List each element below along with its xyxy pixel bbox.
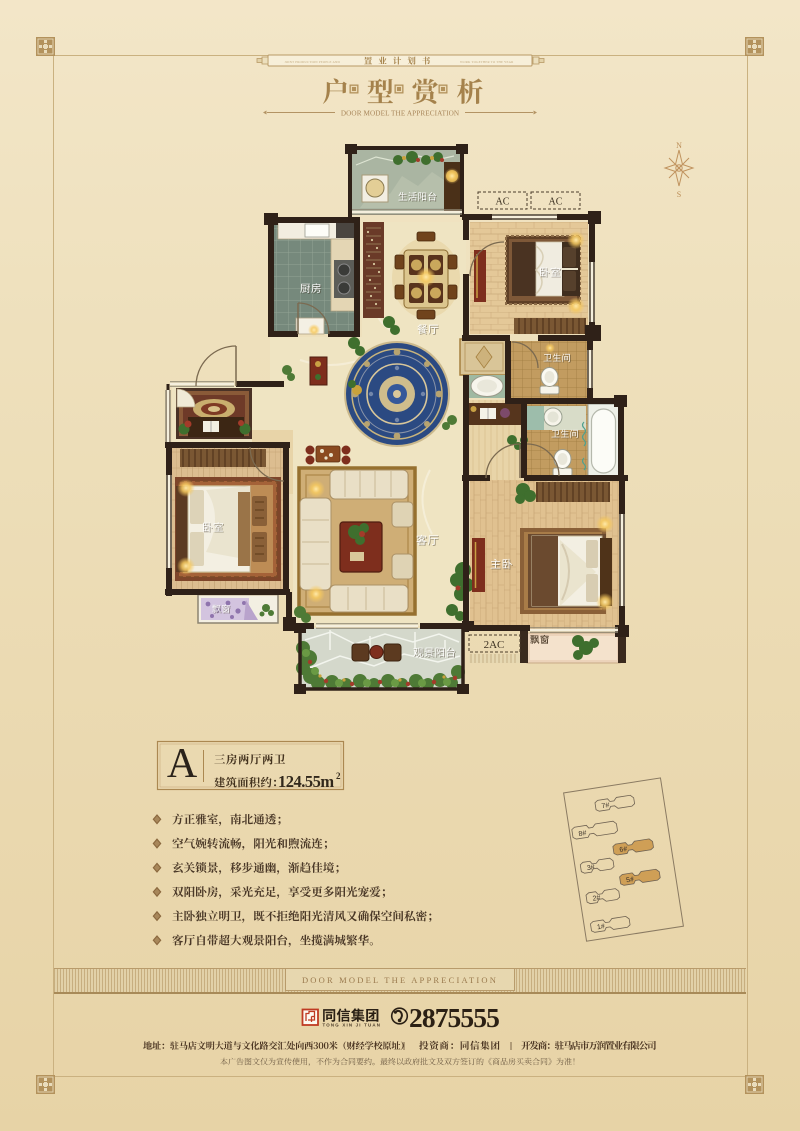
svg-text:DOOR MODEL THE APPRECIATION: DOOR MODEL THE APPRECIATION (341, 110, 460, 118)
svg-text:8#: 8# (578, 830, 587, 838)
svg-text:2#: 2# (592, 895, 601, 903)
svg-text:3#: 3# (586, 864, 595, 872)
svg-text:1#: 1# (597, 923, 606, 931)
svg-text:TONG XIN JI TUAN: TONG XIN JI TUAN (323, 1023, 382, 1028)
svg-text:2AC: 2AC (484, 639, 505, 651)
svg-text:S: S (677, 190, 681, 199)
svg-text:7#: 7# (601, 802, 610, 810)
svg-text:2: 2 (336, 771, 341, 781)
svg-text:124.55m: 124.55m (278, 772, 334, 791)
svg-text:2875555: 2875555 (409, 1002, 499, 1033)
svg-text:5#: 5# (626, 876, 635, 884)
svg-text:A: A (167, 741, 198, 787)
svg-text:6#: 6# (619, 846, 628, 854)
svg-text:AC: AC (549, 197, 563, 208)
svg-text:JOINT PRODUCTION PEOPLE AND: JOINT PRODUCTION PEOPLE AND (284, 60, 340, 64)
svg-text:N: N (676, 141, 682, 150)
svg-text:WORK TOGETHER TO THE YEAR: WORK TOGETHER TO THE YEAR (460, 60, 514, 64)
svg-text:AC: AC (496, 197, 510, 208)
